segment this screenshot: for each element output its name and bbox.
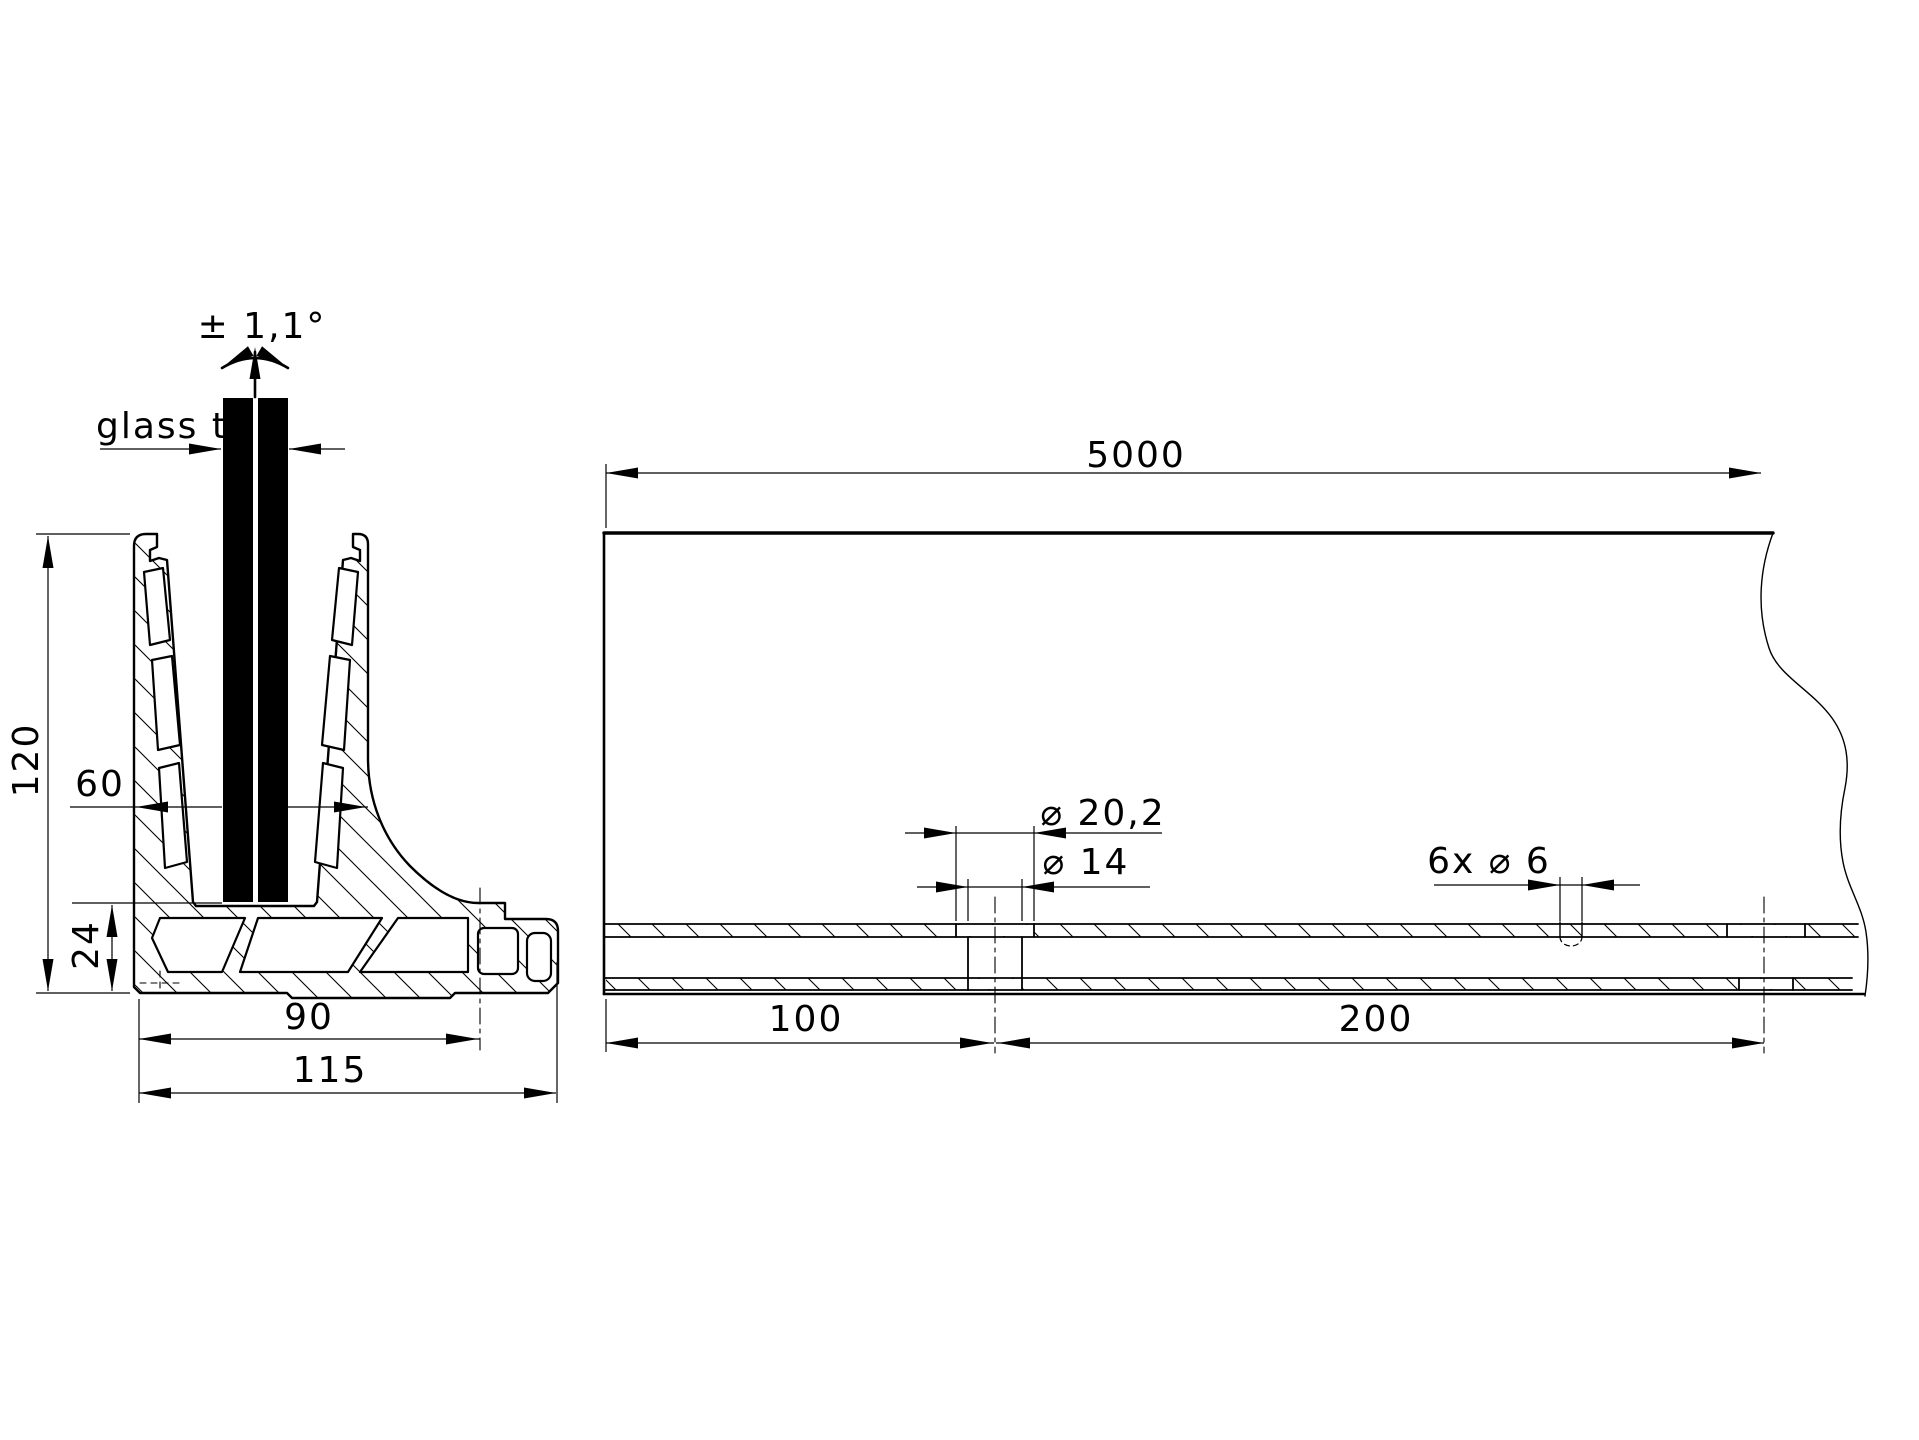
end-to-first-hole-label: 100 <box>769 1002 844 1038</box>
side-view <box>604 533 1868 1053</box>
height-label: 120 <box>9 723 45 798</box>
drawing-canvas <box>0 0 1919 1440</box>
drawing-sheet: ± 1,1° glass t 120 60 24 90 115 5000 ⌀ 2… <box>0 0 1919 1440</box>
drain-holes-label: 6x ⌀ 6 <box>1427 844 1551 880</box>
angle-tolerance-label: ± 1,1° <box>198 309 327 345</box>
counterbore-diameter-label: ⌀ 20,2 <box>1040 796 1165 832</box>
side-view-edges <box>604 533 1864 994</box>
drain-hole-hidden-arc <box>1560 937 1582 946</box>
base-height-label: 24 <box>69 920 105 970</box>
hole-diameter-label: ⌀ 14 <box>1043 845 1130 881</box>
hole-spacing-label: 200 <box>1339 1002 1414 1038</box>
base-width-label: 115 <box>293 1053 368 1089</box>
length-label: 5000 <box>1086 438 1186 474</box>
base-top-wall-hatch <box>606 924 1858 937</box>
glass-panel <box>223 398 288 902</box>
glass-thickness-label: glass t <box>96 409 228 445</box>
top-width-label: 60 <box>75 767 125 803</box>
hole-offset-label: 90 <box>284 1000 334 1036</box>
base-bottom-wall-hatch <box>606 978 1852 990</box>
